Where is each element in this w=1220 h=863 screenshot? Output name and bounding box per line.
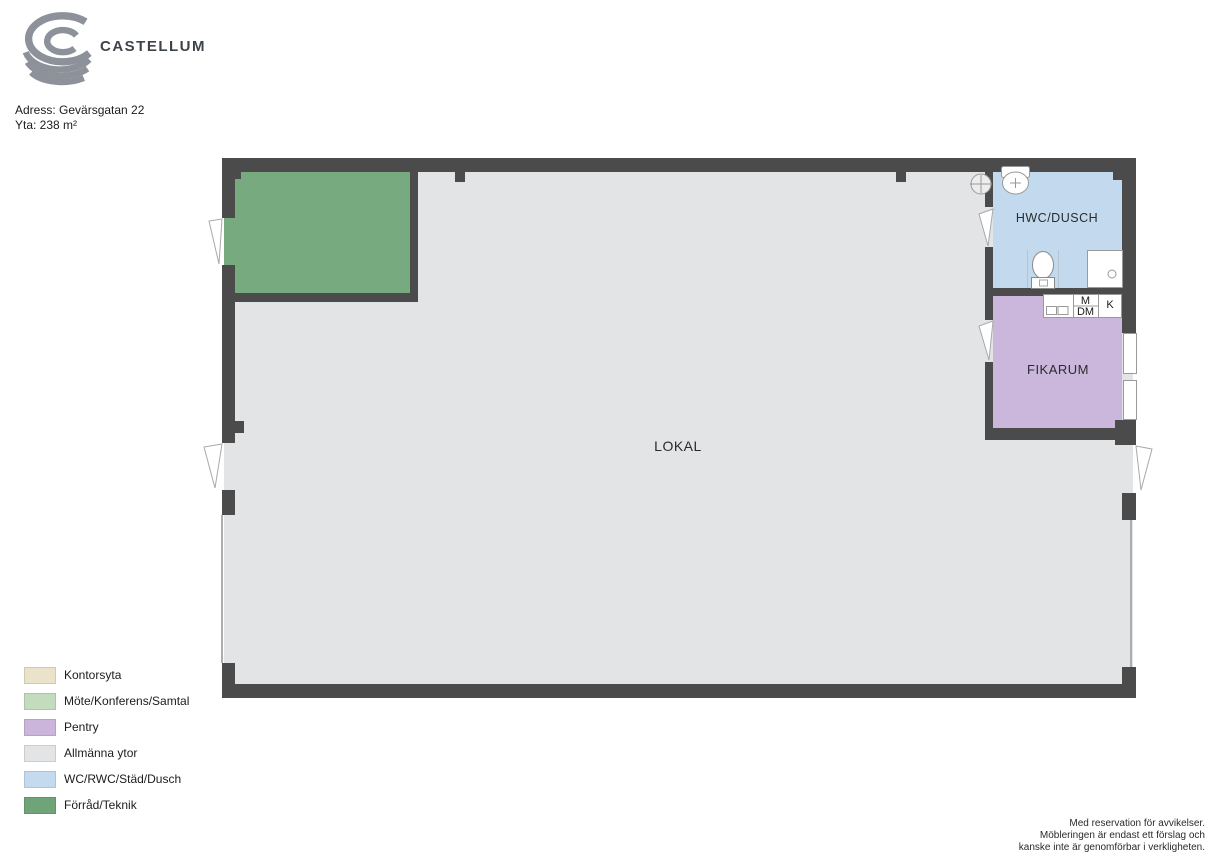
room-hwc-dusch <box>993 172 1122 288</box>
legend-label: Kontorsyta <box>64 668 121 682</box>
disclaimer-line: Med reservation för avvikelser. <box>1019 818 1205 830</box>
legend-swatch <box>24 797 56 814</box>
wall-fikarum-left-1 <box>985 296 993 320</box>
area-line: Yta: 238 m² <box>15 118 144 133</box>
wall-corner-stub <box>1113 172 1122 180</box>
label-fikarum: FIKARUM <box>1008 362 1108 377</box>
legend-swatch <box>24 719 56 736</box>
room-forrad-door-gap <box>224 218 235 265</box>
wall-forrad-bottom <box>222 293 418 302</box>
wall-forrad-right <box>410 172 418 302</box>
disclaimer-line: Möbleringen är endast ett förslag och <box>1019 830 1205 842</box>
wall-right-3 <box>1122 493 1136 520</box>
legend-label: Allmänna ytor <box>64 746 137 760</box>
wall-right-1 <box>1122 158 1136 333</box>
wall-hwc-left-1 <box>985 172 993 207</box>
wall-fikarum-bottom <box>985 428 1136 440</box>
wall-left-4 <box>222 663 235 698</box>
castellum-logo-icon <box>12 8 104 100</box>
legend-label: WC/RWC/Städ/Dusch <box>64 772 181 786</box>
legend-swatch <box>24 693 56 710</box>
wall-hwc-bottom <box>985 288 1136 296</box>
wall-top-stub-1 <box>455 172 465 182</box>
wall-left-3 <box>222 490 235 515</box>
disclaimer-line: kanske inte är genomförbar i verklighete… <box>1019 842 1205 854</box>
label-hwc-dusch: HWC/DUSCH <box>997 211 1117 225</box>
glass-wall-left <box>221 515 223 663</box>
address-line: Adress: Gevärsgatan 22 <box>15 103 144 118</box>
wall-top <box>222 158 1136 172</box>
wall-left-stub <box>235 421 244 433</box>
room-forrad-teknik <box>235 172 410 293</box>
label-fridge: K <box>1098 299 1122 311</box>
legend-swatch <box>24 771 56 788</box>
label-dishwasher: DM <box>1073 306 1098 318</box>
legend-swatch <box>24 745 56 762</box>
legend-label: Förråd/Teknik <box>64 798 137 812</box>
legend-swatch <box>24 667 56 684</box>
brand-name: CASTELLUM <box>100 38 206 55</box>
glass-wall-right <box>1130 520 1132 667</box>
label-lokal: LOKAL <box>628 438 728 454</box>
address-block: Adress: Gevärsgatan 22 Yta: 238 m² <box>15 103 144 133</box>
wall-left-1 <box>222 158 235 218</box>
wall-fikarum-left-2 <box>985 362 993 428</box>
wall-forrad-corner-stub <box>235 172 241 179</box>
disclaimer: Med reservation för avvikelser. Möblerin… <box>1019 818 1205 854</box>
legend-label: Möte/Konferens/Samtal <box>64 694 189 708</box>
wall-left-2 <box>222 265 235 443</box>
wall-right-4 <box>1122 667 1136 698</box>
legend-label: Pentry <box>64 720 99 734</box>
wall-bottom <box>222 684 1136 698</box>
wall-top-stub-2 <box>896 172 906 182</box>
